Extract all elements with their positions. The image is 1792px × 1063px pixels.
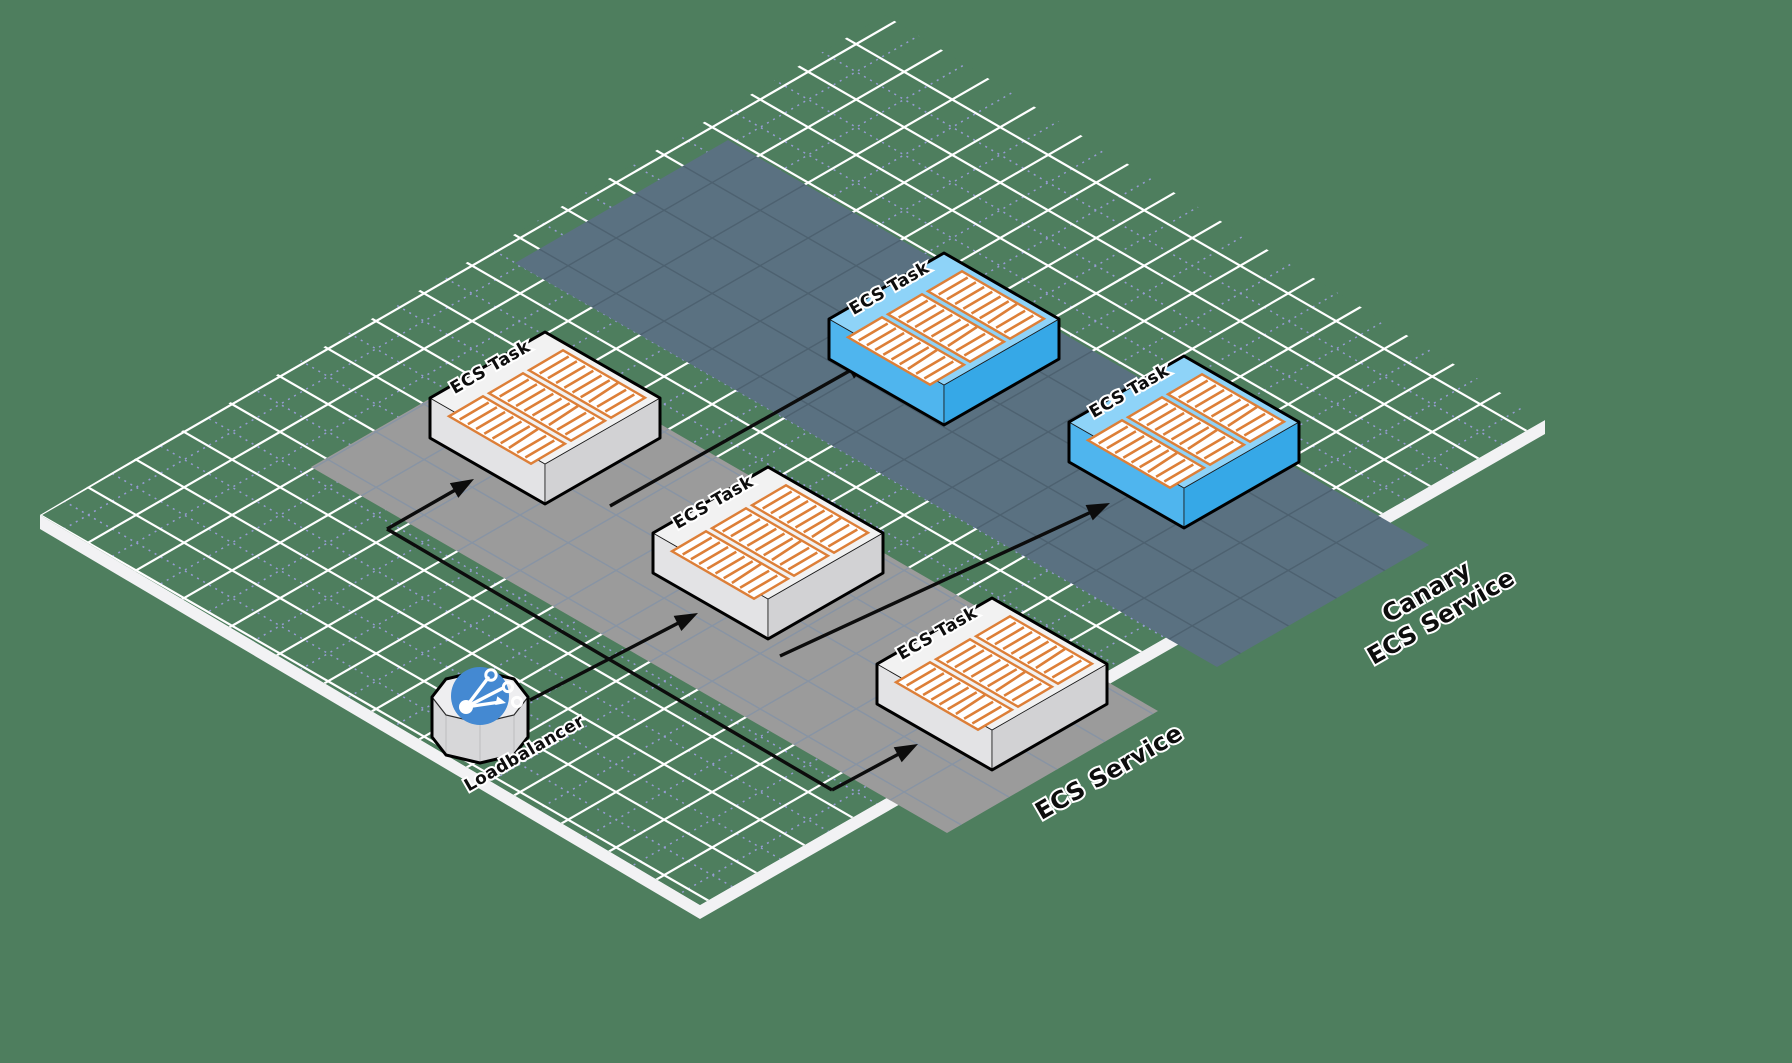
isometric-diagram-canvas: ECS Task ECS Task ECS Task ECS Task ECS … bbox=[0, 0, 1792, 1063]
loadbalancer-icon-bg bbox=[451, 667, 509, 725]
diagram-svg: ECS Task ECS Task ECS Task ECS Task ECS … bbox=[0, 0, 1792, 1063]
